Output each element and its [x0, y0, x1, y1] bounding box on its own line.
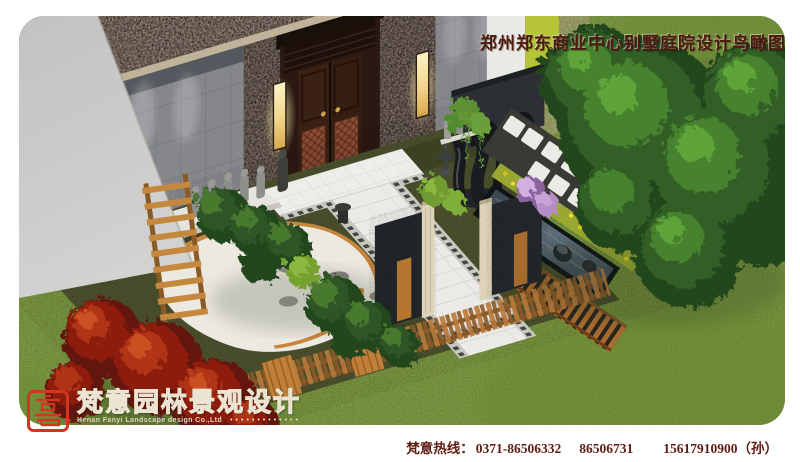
hotline-label: 梵意热线： [406, 437, 474, 457]
hotline-bar: 梵意热线：0371-865063328650673115617910900（孙） [406, 437, 778, 457]
company-logo: 梵意园林景观设计 Henan Fanyi Landscape design Co… [26, 389, 301, 433]
company-name-cn: 梵意园林景观设计 [77, 389, 301, 415]
company-name-en: Henan Fanyi Landscape design Co.,Ltd [77, 417, 222, 424]
presentation-board: 郑州郑东商业中心别墅庭院设计鸟瞰图 梵意园林景观设计 Henan Fanyi L… [0, 0, 800, 462]
design-title: 郑州郑东商业中心别墅庭院设计鸟瞰图 [480, 29, 786, 54]
hotline-phone-2: 86506731 [579, 441, 633, 457]
hotline-phone-1: 0371-86506332 [476, 441, 562, 457]
logo-dots: ••••••••••••• [230, 417, 301, 424]
hotline-phone-3: 15617910900（孙） [663, 437, 778, 457]
fanyi-seal-icon [26, 389, 70, 433]
